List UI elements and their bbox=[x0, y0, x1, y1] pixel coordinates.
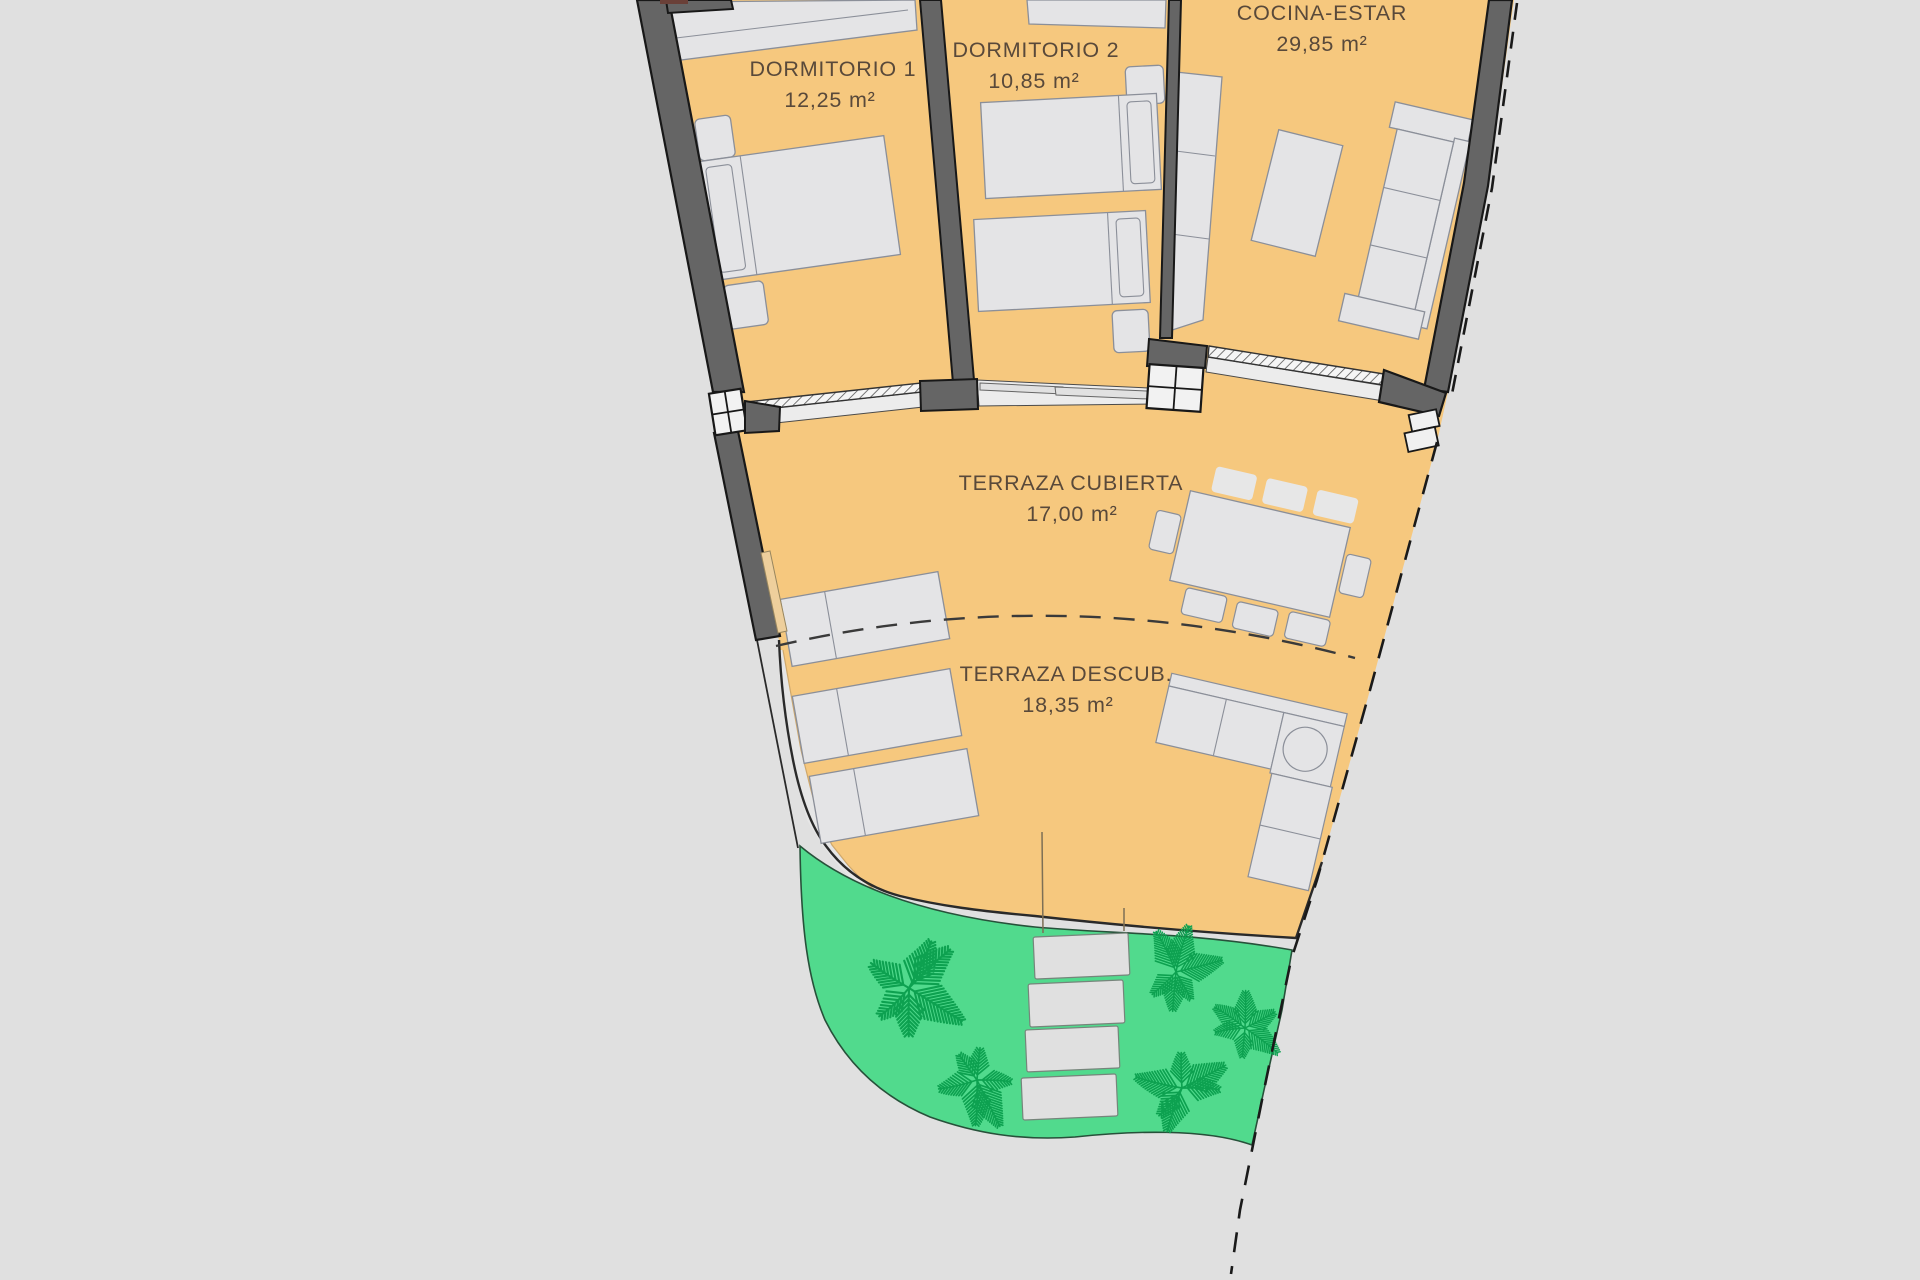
svg-text:TERRAZA DESCUB.: TERRAZA DESCUB. bbox=[960, 662, 1173, 686]
svg-text:12,25 m²: 12,25 m² bbox=[784, 88, 875, 112]
svg-text:COCINA-ESTAR: COCINA-ESTAR bbox=[1237, 1, 1407, 25]
svg-text:29,85 m²: 29,85 m² bbox=[1276, 32, 1367, 56]
svg-text:10,85 m²: 10,85 m² bbox=[988, 69, 1079, 93]
svg-text:DORMITORIO 2: DORMITORIO 2 bbox=[953, 38, 1120, 62]
svg-text:18,35 m²: 18,35 m² bbox=[1022, 693, 1113, 717]
svg-text:DORMITORIO 1: DORMITORIO 1 bbox=[750, 57, 917, 81]
svg-text:TERRAZA CUBIERTA: TERRAZA CUBIERTA bbox=[959, 471, 1184, 495]
svg-text:17,00 m²: 17,00 m² bbox=[1026, 502, 1117, 526]
